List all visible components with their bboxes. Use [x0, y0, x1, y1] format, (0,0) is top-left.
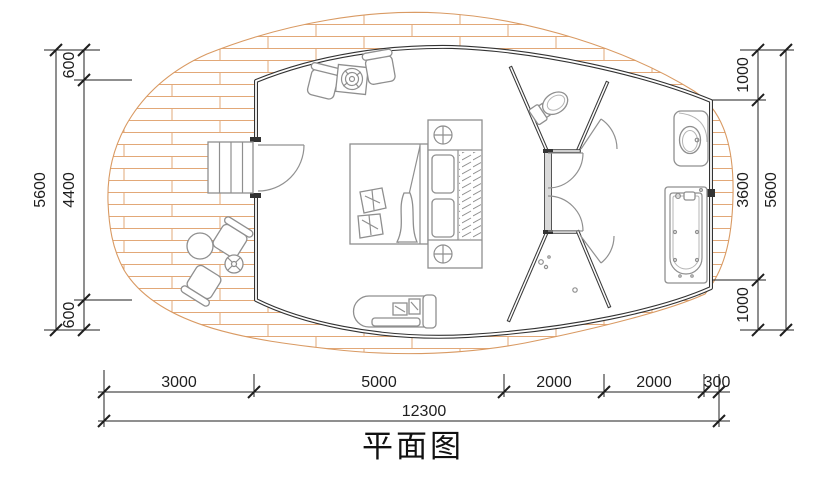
door-jamb-bottom	[250, 193, 261, 198]
pocket-wall	[545, 152, 552, 232]
wall-joint	[707, 189, 715, 197]
bench-cushion	[432, 199, 454, 237]
dim-label-left-total: 5600	[32, 172, 49, 208]
drawing-title: 平面图	[362, 429, 464, 464]
dim-label: 4400	[61, 172, 78, 208]
dim-label: 600	[61, 302, 78, 329]
double-bed-symbol	[350, 144, 428, 244]
dim-label: 3000	[161, 374, 197, 391]
floor-plan-canvas: 5600 600 4400 600 1000 3600 1000 5600 30…	[0, 0, 837, 496]
dim-label: 1000	[735, 287, 752, 323]
bench-cushion	[432, 155, 454, 193]
door-jamb-top	[250, 137, 261, 142]
dim-label: 300	[704, 374, 731, 391]
daybed-symbol	[354, 295, 437, 328]
entry-stairs	[208, 142, 253, 193]
dim-label-bottom-total: 12300	[402, 403, 447, 420]
lamp-symbol	[434, 245, 452, 263]
dim-label: 5000	[361, 374, 397, 391]
hanging-clothes-hatch	[459, 152, 481, 239]
dimension-bottom: 3000 5000 2000 2000 300 12300	[98, 370, 730, 427]
bathtub-symbol	[665, 187, 707, 283]
dim-label-right-total: 5600	[763, 172, 780, 208]
sink-symbol	[674, 111, 708, 166]
wardrobe-unit	[428, 120, 482, 268]
dim-label: 2000	[536, 374, 572, 391]
tub-faucet	[684, 192, 695, 200]
side-table-symbol	[225, 255, 243, 273]
dim-label: 2000	[636, 374, 672, 391]
dim-label: 600	[61, 52, 78, 79]
floor-plan-page: 5600 600 4400 600 1000 3600 1000 5600 30…	[0, 0, 837, 496]
round-table-symbol	[187, 233, 213, 259]
dim-label: 3600	[735, 172, 752, 208]
lamp-symbol	[434, 126, 452, 144]
dim-label: 1000	[735, 57, 752, 93]
tea-table-symbol	[336, 65, 369, 95]
